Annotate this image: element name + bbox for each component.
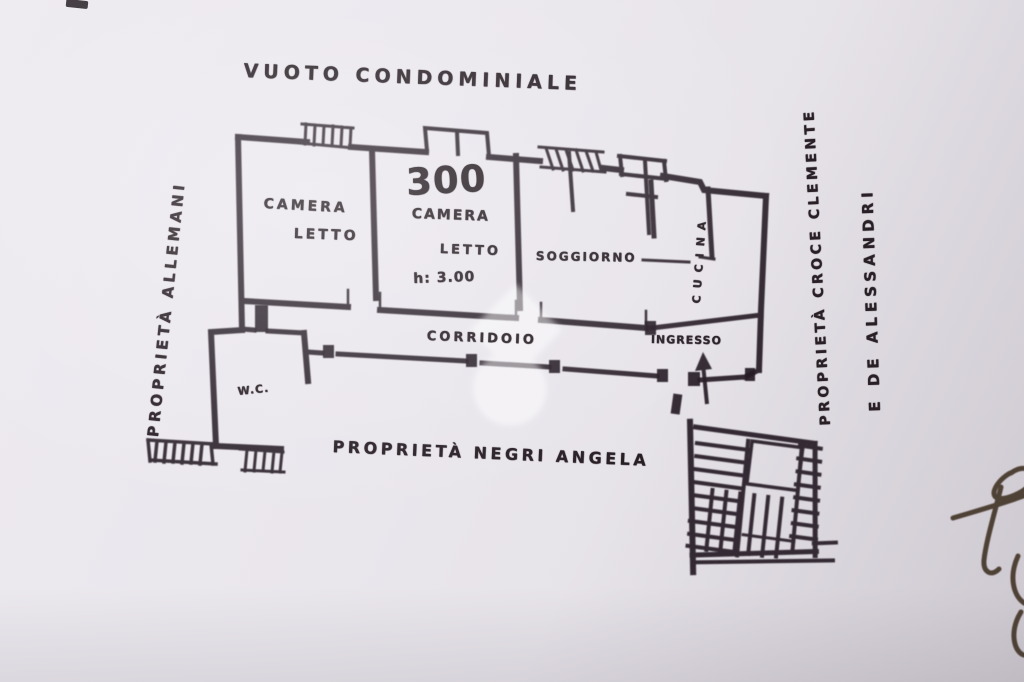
room-label-entry: INGRESSO (651, 333, 722, 347)
living-room-leader-line (643, 260, 689, 262)
window-hatch-1 (300, 124, 354, 148)
room-area-number: 300 (405, 157, 487, 204)
room-height-note: h: 3.00 (413, 269, 476, 287)
staircase (682, 422, 842, 580)
wc-bottom-hatch (240, 449, 284, 472)
room-label-bedroom2-line1: CAMERA (411, 206, 490, 225)
home-pin-watermark-icon (470, 284, 562, 426)
scanned-floor-plan: VUOTO CONDOMINIALE PROPRIETÀ ALLEMANI PR… (0, 0, 1024, 682)
room-label-bedroom1-line2: LETTO (293, 226, 358, 244)
window-2 (425, 128, 489, 156)
signature (953, 468, 1024, 655)
room-label-bedroom2-line2: LETTO (439, 242, 501, 259)
left-stub-window (148, 440, 216, 464)
room-label-living-room: SOGGIORNO (536, 249, 637, 265)
bedroom-divider-1 (372, 150, 376, 298)
scan-speck (66, 0, 89, 9)
